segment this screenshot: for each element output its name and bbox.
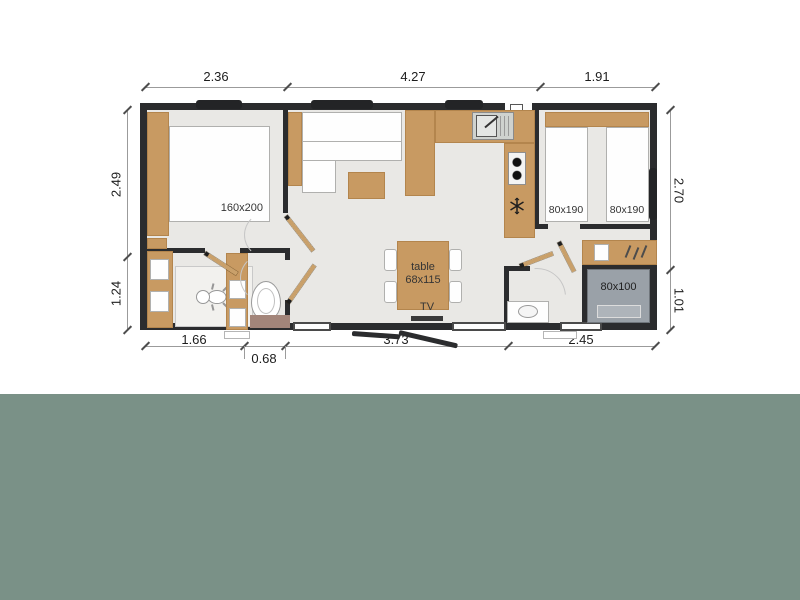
window-top-kitchen [445, 100, 483, 109]
info-panel: Cottage PREMIUM Nouveauté 2024 m² 32 m² … [0, 394, 800, 600]
dim-label-bottom-sub: 0.68 [234, 351, 294, 366]
sofa-chaise [302, 160, 336, 193]
door-arc [244, 212, 290, 258]
twin-headboard [545, 112, 649, 127]
dim-tick [666, 325, 675, 334]
sofa-back [302, 112, 402, 142]
bath1-sink [150, 259, 169, 280]
dim-label-top-1: 2.36 [186, 69, 246, 84]
dim-label-right-2: 1.01 [672, 279, 687, 323]
twin-bed-1-label: 80x190 [542, 204, 590, 216]
dim-label-top-2: 4.27 [383, 69, 443, 84]
shower-tray [597, 305, 641, 318]
wall-bedroom2-hall [580, 224, 657, 229]
nightstand [147, 238, 167, 249]
dining-table-label-line2: 68x115 [393, 274, 453, 287]
shower-label: 80x100 [587, 281, 650, 294]
window-top-living [311, 100, 373, 109]
fridge-snowflake-icon [507, 196, 527, 216]
wall-bath1-hall [285, 248, 290, 260]
dining-table-label-line1: table [393, 261, 453, 274]
wall-bedroom2-hall [534, 224, 548, 229]
twin-bed-2-label: 80x190 [603, 204, 651, 216]
dim-line-top [145, 87, 655, 88]
dim-tick [123, 325, 132, 334]
dining-table-label: table 68x115 [393, 261, 453, 286]
dim-label-right-1: 2.70 [672, 169, 687, 213]
kitchen-tall-cabinet [405, 110, 435, 196]
wardrobe [147, 112, 169, 236]
window-top-bedroom1 [196, 100, 242, 109]
sliding-door-bottom [452, 322, 506, 331]
dim-label-bottom-1: 1.66 [164, 332, 224, 347]
cooktop [508, 152, 526, 185]
dim-line-left [127, 110, 128, 330]
tv-unit [411, 316, 443, 321]
sofa-seat [302, 141, 402, 161]
master-bed-label: 160x200 [178, 202, 263, 215]
bath1-sink [150, 291, 169, 312]
dim-tick [651, 341, 660, 350]
floorplan-page: 2.36 4.27 1.91 2.49 1.24 2.70 1.01 1.66 … [0, 0, 800, 600]
door-arc [240, 254, 288, 302]
dim-label-left-2: 1.24 [109, 272, 124, 316]
bath1-cabinet-sink [229, 308, 246, 327]
dim-label-top-3: 1.91 [567, 69, 627, 84]
floorplan: 2.36 4.27 1.91 2.49 1.24 2.70 1.01 1.66 … [0, 0, 800, 394]
dim-label-left-1: 2.49 [109, 163, 124, 207]
dim-tick [651, 82, 660, 91]
window-bottom-hall [560, 322, 602, 331]
sofa-side-table [288, 112, 302, 186]
kitchen-drainboard [500, 116, 512, 136]
doormat [250, 315, 290, 328]
exterior-step [224, 331, 250, 339]
exterior-step [543, 331, 577, 339]
dressing-sink [594, 244, 609, 261]
window-bottom-bath1 [293, 322, 331, 331]
coffee-table [348, 172, 385, 199]
tv-label: TV [407, 301, 447, 314]
